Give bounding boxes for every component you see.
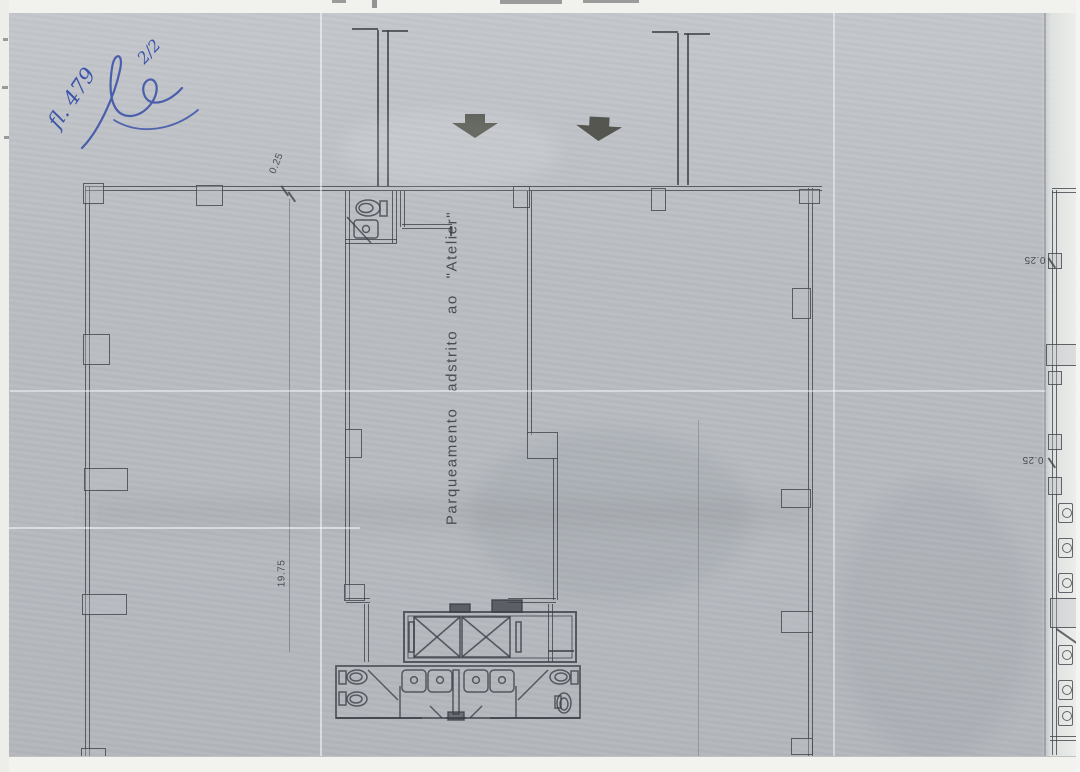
pillar — [792, 288, 811, 319]
ramp-line — [677, 33, 679, 185]
wall-segment — [364, 604, 369, 662]
toilet-icon — [1058, 680, 1073, 700]
corridor-wall-right-upper — [527, 191, 532, 435]
pillar — [196, 185, 223, 206]
corridor-wall-left — [345, 191, 350, 600]
wall-notch — [1048, 434, 1062, 450]
scan-highlight — [340, 110, 560, 190]
pillar — [82, 594, 127, 615]
ramp-line — [687, 33, 689, 185]
sink-icon — [464, 670, 488, 692]
pillar — [799, 189, 820, 204]
scan-debris — [4, 136, 9, 139]
paper-crease — [0, 527, 360, 529]
ramp-cap-line — [382, 30, 408, 32]
pillar — [791, 738, 813, 755]
scan-debris — [2, 86, 8, 89]
pillar — [83, 334, 110, 365]
room-label: Parqueamento adstrito ao "Atelier" — [444, 211, 461, 525]
ramp-cap-line — [652, 31, 678, 33]
door-swing-line — [347, 217, 371, 243]
toilet-icon — [1058, 573, 1073, 593]
pillar — [781, 611, 813, 633]
paper-crease — [10, 390, 1045, 392]
paper-crease — [320, 13, 322, 757]
door-swing-line — [518, 670, 548, 700]
sink-icon — [490, 670, 514, 692]
scan-debris — [3, 38, 8, 41]
pillar — [651, 188, 666, 211]
sink-icon — [402, 670, 426, 692]
toilet-icon — [339, 692, 346, 705]
dimension-text: 0.25 — [268, 151, 286, 175]
wall-notch — [1048, 477, 1062, 495]
scan-debris — [583, 0, 639, 3]
adjacent-wall — [1052, 190, 1057, 755]
door-swing-line — [368, 670, 398, 700]
elevator-door-slot — [409, 622, 414, 652]
toilet-icon — [1058, 645, 1073, 665]
scan-margin-bottom — [0, 756, 1080, 772]
wall-segment — [400, 191, 405, 227]
toilet-icon — [339, 671, 346, 684]
toilet-icon — [1058, 503, 1073, 523]
handwritten-signature — [70, 36, 220, 166]
dimension-text: 0.25 — [1024, 254, 1045, 265]
toilet-icon — [1058, 706, 1073, 726]
scanned-floorplan-sheet: fl. 479 2/2 — [0, 0, 1080, 772]
down-arrow-icon — [575, 116, 622, 142]
dimension-line — [289, 199, 290, 652]
upper-bathroom-fixtures — [342, 194, 402, 248]
paper-crease — [833, 13, 835, 757]
scan-debris — [372, 0, 377, 8]
wall-notch — [1048, 371, 1062, 385]
sheet-edge-shadow — [1044, 13, 1046, 757]
scan-stain — [90, 498, 810, 528]
scan-margin-left — [0, 0, 9, 772]
pillar — [84, 468, 128, 491]
elevator-door-slot — [516, 622, 521, 652]
pillar — [83, 183, 104, 204]
lower-bathrooms — [334, 662, 584, 724]
wall-segment — [346, 598, 370, 603]
elevator-shaft — [398, 594, 584, 668]
sink-icon — [428, 670, 452, 692]
outer-wall-right — [808, 188, 813, 757]
scan-debris — [332, 0, 346, 3]
dimension-text: 19.75 — [276, 560, 287, 588]
scan-stain — [840, 480, 1030, 760]
scan-margin-right — [1076, 0, 1080, 772]
wall-notch — [345, 429, 362, 458]
scan-debris — [500, 0, 562, 4]
pillar — [1046, 344, 1080, 366]
ramp-cap-line — [352, 28, 378, 30]
toilet-icon — [571, 671, 578, 684]
dimension-text: 0.25 — [1022, 454, 1043, 465]
toilet-icon — [1058, 538, 1073, 558]
